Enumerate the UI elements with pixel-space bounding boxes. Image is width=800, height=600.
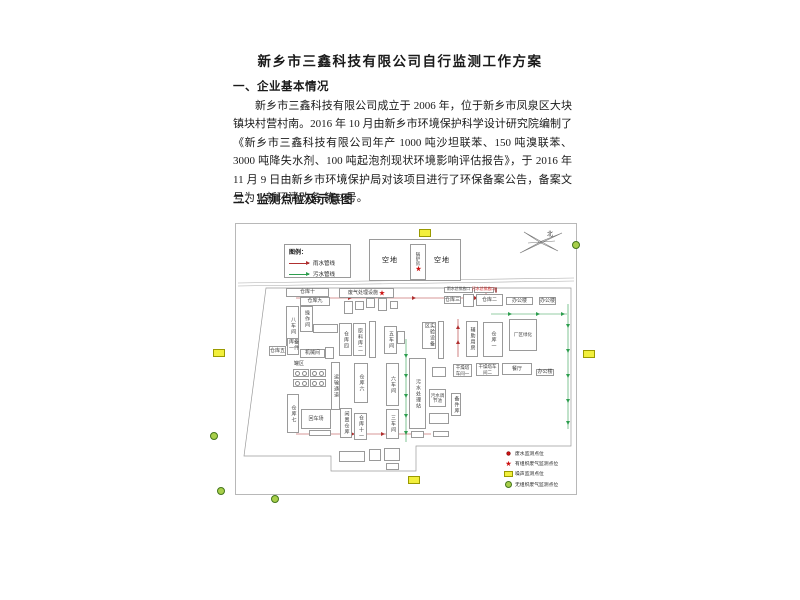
pipeline-legend-item: 雨水管线 <box>289 259 346 267</box>
unlabeled-box <box>429 413 449 424</box>
building-box: 办公楼 <box>506 297 533 305</box>
empty-lot-left-label: 空地 <box>382 255 398 265</box>
pipeline-legend-label: 污水管线 <box>313 270 335 278</box>
unlabeled-box <box>411 431 424 438</box>
building-box: 仓库一 <box>483 322 503 357</box>
building-box: 废气处理设施 <box>339 288 394 298</box>
gas-monitoring-marker <box>271 495 279 503</box>
unlabeled-box <box>310 379 326 387</box>
building-box: 办公楼 <box>536 369 554 376</box>
pipeline-legend-title: 图例： <box>289 247 346 256</box>
star-point-icon <box>506 461 512 467</box>
noise-monitoring-marker <box>213 349 225 357</box>
building-box: 污水处理站 <box>409 358 426 429</box>
building-box: 仓库十 <box>286 288 329 297</box>
unlabeled-box <box>293 379 309 387</box>
organized-gas-point-icon <box>416 266 422 272</box>
building-box: 仓库六 <box>354 363 368 403</box>
building-box: 干燥塔车间一 <box>453 364 472 377</box>
building-box: 仓库七 <box>287 394 299 433</box>
organized-gas-point-icon <box>379 290 385 296</box>
noise-point-icon <box>504 471 513 478</box>
unlabeled-box <box>369 449 381 461</box>
unlabeled-box <box>438 321 444 359</box>
building-box: 运输通道 <box>331 362 340 410</box>
point-legend-label: 有组织废气监测点位 <box>515 460 558 467</box>
unlabeled-box <box>366 298 375 308</box>
page-title: 新乡市三鑫科技有限公司自行监测工作方案 <box>0 50 800 70</box>
gas-monitoring-marker <box>217 487 225 495</box>
section-heading-monitoring-points: 二、监测点位及示意图 <box>233 191 353 207</box>
noise-monitoring-marker <box>583 350 595 358</box>
building-box: 三车间 <box>386 409 399 439</box>
tank-area-label: 罐区 <box>294 360 304 367</box>
unlabeled-box <box>433 431 449 437</box>
pipeline-legend-label: 雨水管线 <box>313 259 335 267</box>
building-box: 仓库四 <box>339 323 352 356</box>
boiler-room-box: 锅炉房 <box>410 244 426 280</box>
building-box: 办公楼 <box>539 297 556 305</box>
building-box: 六车间 <box>386 363 399 406</box>
building-box: 机械间 <box>300 349 325 358</box>
point-legend-label: 无组织废气监测点位 <box>515 481 558 488</box>
unlabeled-box <box>369 321 376 358</box>
unlabeled-box <box>339 451 365 462</box>
unlabeled-box <box>384 448 400 461</box>
point-legend-item: 无组织废气监测点位 <box>504 481 574 488</box>
building-box: 干燥塔车间二 <box>476 363 499 376</box>
building-box: 闲置仓库 <box>340 408 352 438</box>
building-box: 仓库九 <box>300 297 330 306</box>
unlabeled-box <box>309 430 331 436</box>
site-diagram: 图例： 雨水管线污水管线 空地 锅炉房 空地 罐区 废水监测点位有组织废气监测点… <box>235 223 577 495</box>
unlabeled-box <box>325 347 334 359</box>
pipeline-legend-item: 污水管线 <box>289 270 346 278</box>
building-box: 备件库 <box>451 393 461 416</box>
compass-icon: 北 <box>518 229 568 255</box>
building-box: 原料库二 <box>353 323 366 356</box>
unlabeled-box <box>397 331 405 344</box>
building-box: 污水调节池 <box>429 389 446 407</box>
unlabeled-box <box>310 369 326 377</box>
building-box: 仓库五 <box>269 346 286 356</box>
unlabeled-box <box>313 324 338 333</box>
unlabeled-box <box>390 301 398 309</box>
unlabeled-box <box>463 294 474 307</box>
building-box: 雨水总排放口 <box>444 287 473 293</box>
building-box: 回车场 <box>301 409 331 429</box>
point-legend-item: 噪声监测点位 <box>504 470 574 477</box>
empty-lot-block: 空地 锅炉房 空地 <box>369 239 461 281</box>
gas-monitoring-marker <box>572 241 580 249</box>
pipeline-legend: 图例： 雨水管线污水管线 <box>284 244 351 278</box>
building-box: 仓库三 <box>444 296 461 304</box>
unlabeled-box <box>386 463 399 470</box>
building-box: 备件库一 <box>287 338 299 355</box>
building-box: 厂区绿化 <box>509 319 537 351</box>
boiler-room-label: 锅炉房 <box>415 252 421 266</box>
building-box: 五车间 <box>384 326 397 354</box>
sew-pipeline-arrow-icon <box>289 274 309 275</box>
building-box: 操作间 <box>300 306 313 332</box>
compass-north-label: 北 <box>547 230 553 238</box>
building-box: 实验设备区 <box>422 322 436 349</box>
unlabeled-box <box>344 301 353 314</box>
point-legend-label: 噪声监测点位 <box>515 470 544 477</box>
building-box: 仓库十一 <box>354 413 367 440</box>
monitoring-point-legend: 废水监测点位有组织废气监测点位噪声监测点位无组织废气监测点位 <box>504 450 574 491</box>
point-legend-label: 废水监测点位 <box>515 450 544 457</box>
point-legend-item: 废水监测点位 <box>504 450 574 457</box>
noise-monitoring-marker <box>408 476 420 484</box>
noise-monitoring-marker <box>419 229 431 237</box>
point-legend-item: 有组织废气监测点位 <box>504 460 574 467</box>
document-page: 新乡市三鑫科技有限公司自行监测工作方案 一、企业基本情况 新乡市三鑫科技有限公司… <box>0 0 800 600</box>
unlabeled-box <box>378 298 387 311</box>
gas-monitoring-marker <box>210 432 218 440</box>
unlabeled-box <box>432 367 446 377</box>
building-box: 仓库二 <box>476 294 503 306</box>
building-box: 污水总排放口 <box>474 287 494 293</box>
gas-point-icon <box>505 481 512 488</box>
building-box: 餐厅 <box>502 363 532 375</box>
rain-pipeline-arrow-icon <box>289 263 309 264</box>
unlabeled-box <box>293 369 309 377</box>
building-box: 辅助用房 <box>466 321 478 357</box>
empty-lot-right-label: 空地 <box>434 255 450 265</box>
section-heading-company-info: 一、企业基本情况 <box>233 78 329 94</box>
dot-point-icon <box>507 452 511 456</box>
unlabeled-box <box>355 301 364 310</box>
